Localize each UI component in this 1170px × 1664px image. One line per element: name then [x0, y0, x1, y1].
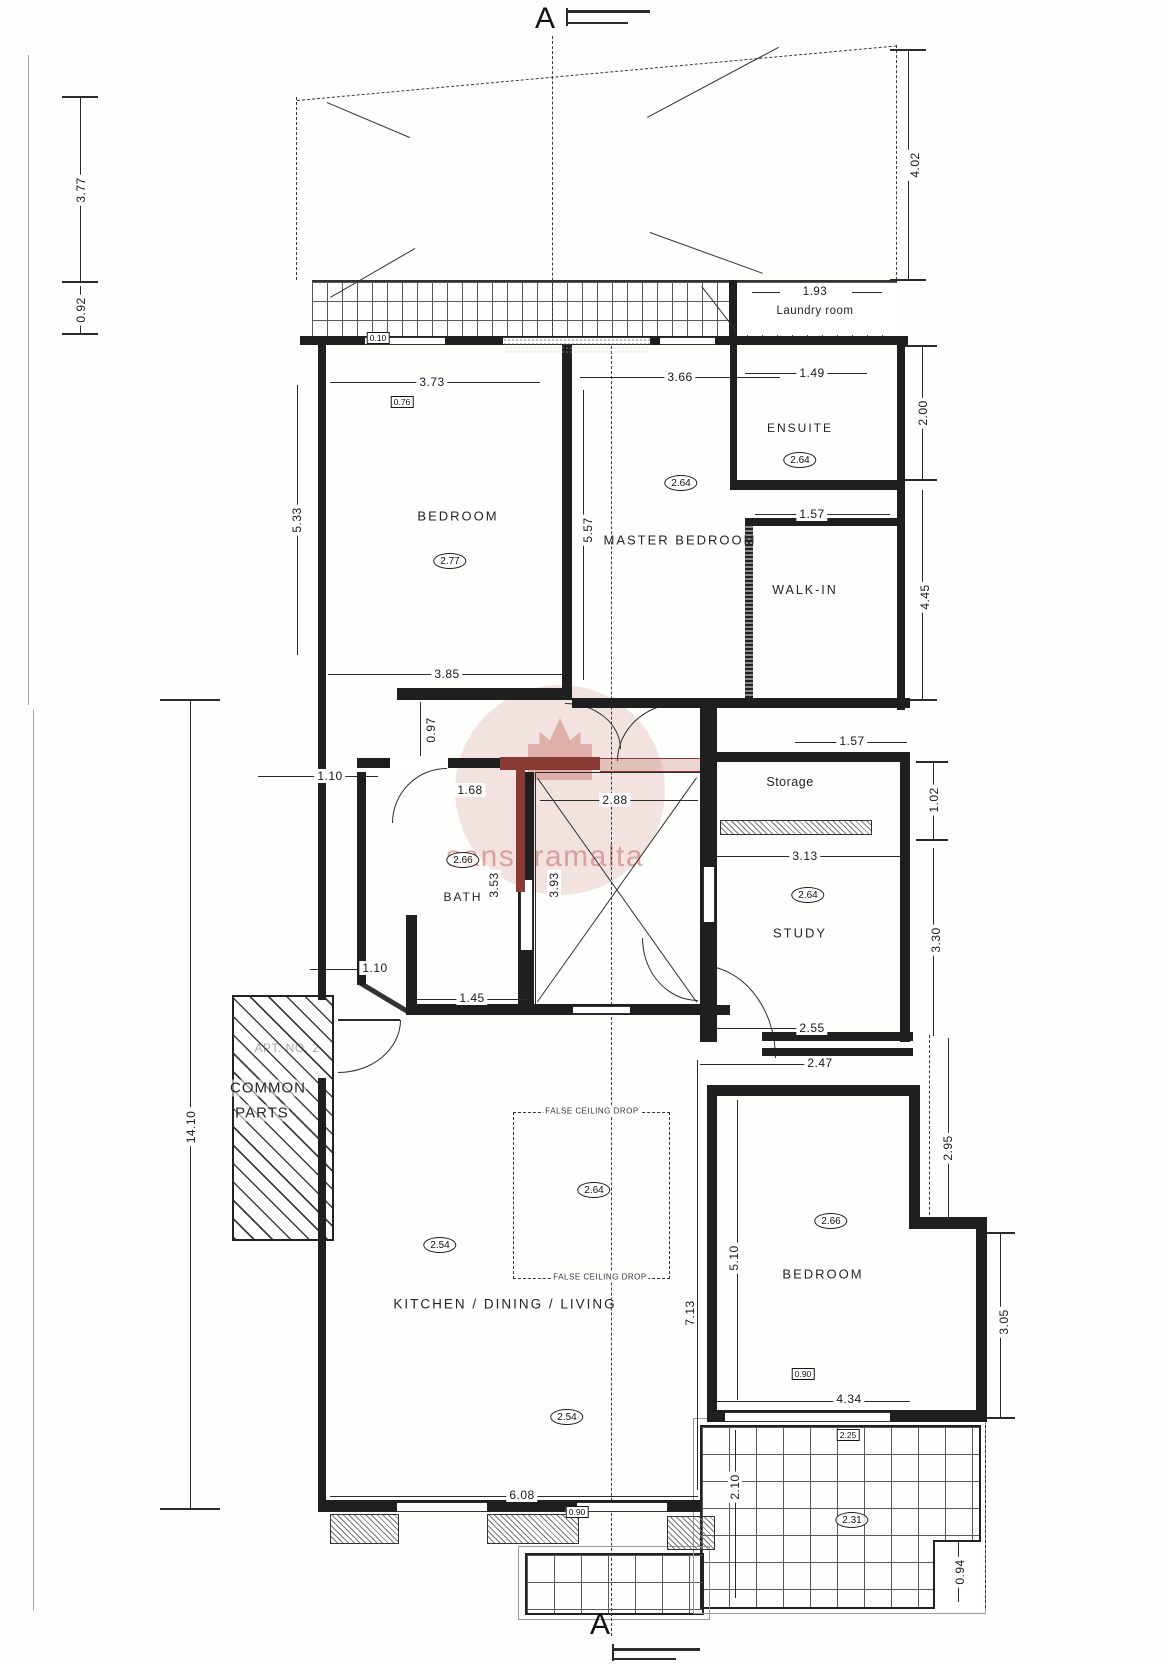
dim-common-length: 14.10 — [184, 1108, 198, 1147]
scan-artifact-line — [28, 55, 29, 705]
terrace-marker: 2.25 — [837, 1429, 860, 1441]
dim-bath-depth: 3.53 — [487, 869, 501, 900]
dim-tick — [160, 699, 220, 701]
airspace-boundary-right — [896, 45, 897, 280]
entrance-door-leaf — [338, 1019, 400, 1021]
dim-study-bottom: 2.55 — [796, 1021, 827, 1035]
window-sill-dots — [505, 346, 648, 353]
dim-line — [420, 702, 421, 758]
extension-line — [985, 1425, 986, 1608]
section-line — [552, 36, 553, 336]
dim-hall-width-lower: 1.10 — [359, 961, 390, 975]
void-diagonal — [650, 232, 763, 274]
wall-study-right — [900, 752, 910, 1042]
wall-red-highlight — [500, 757, 600, 770]
dim-line — [948, 1038, 949, 1222]
apt-number-label: APT. NO. 2 — [254, 1041, 319, 1055]
room-label-bedroom-2: BEDROOM — [782, 1267, 863, 1282]
dim-walkin-width: 1.57 — [796, 507, 827, 521]
window-kitchen — [577, 1502, 667, 1512]
wall-bedroom2-step — [909, 1217, 987, 1229]
dim-hall-drop: 0.97 — [424, 714, 438, 745]
section-flag-bottom — [614, 1648, 700, 1651]
room-label-kitchen: KITCHEN / DINING / LIVING — [393, 1297, 616, 1312]
room-label-storage: Storage — [766, 775, 813, 789]
dim-bath-door: 1.68 — [454, 783, 485, 797]
dim-bedroom1-top: 3.73 — [416, 375, 447, 389]
terrace-outer-edge — [518, 1546, 710, 1620]
section-flag-bottom — [612, 1644, 614, 1661]
section-flag-top — [566, 22, 628, 24]
wall-bath-stub — [406, 915, 417, 1005]
void-diagonal — [327, 102, 410, 138]
dim-tick — [890, 49, 926, 51]
door-arc-entrance — [338, 1020, 401, 1073]
dim-line — [190, 700, 191, 1510]
wall-hall-bottom — [572, 698, 910, 708]
wall-study-bottom — [762, 1032, 913, 1041]
ceiling-oval-bedroom-2: 2.66 — [814, 1213, 847, 1229]
window-hall-bottom — [573, 1006, 630, 1014]
dim-bedroom2-lower: 3.05 — [997, 1306, 1011, 1337]
window-sill — [667, 1516, 715, 1550]
room-label-common-1: COMMON — [230, 1080, 306, 1097]
section-flag-top — [566, 10, 650, 13]
dim-stair-window: 2.88 — [599, 793, 630, 807]
wall-bedroom2-left — [707, 1085, 717, 1421]
section-marker-bottom: A — [590, 1608, 610, 1642]
dim-line — [700, 1064, 812, 1065]
window-master — [503, 337, 650, 345]
dim-stair-depth: 3.93 — [547, 869, 561, 900]
window-bedroom2-terrace — [725, 1412, 890, 1422]
dim-tick — [752, 292, 780, 293]
section-line — [611, 336, 612, 1636]
dim-bedroom2-offset: 2.47 — [804, 1056, 835, 1070]
dim-master-top: 3.66 — [664, 370, 695, 384]
dim-bedroom1-bottom: 3.85 — [431, 667, 462, 681]
dim-storage-width: 3.13 — [789, 849, 820, 863]
ceiling-oval-master: 2.64 — [664, 475, 697, 491]
dim-tick — [160, 1508, 220, 1510]
dim-tick — [62, 281, 98, 283]
section-flag-top — [566, 8, 568, 26]
room-label-ensuite: ENSUITE — [767, 421, 833, 435]
dim-closet-width: 1.57 — [836, 734, 867, 748]
dim-tick — [62, 96, 98, 98]
room-label-bath: BATH — [443, 890, 482, 904]
dim-line — [735, 1430, 736, 1598]
dim-study-height: 3.30 — [929, 924, 943, 955]
dim-ensuite-depth: 2.00 — [916, 397, 930, 428]
wall-bedroom1-bottom — [397, 688, 572, 700]
kitchen-sill-marker: 0.90 — [566, 1506, 589, 1518]
room-label-laundry: Laundry room — [777, 305, 854, 317]
dim-yard-depth: 0.92 — [74, 294, 88, 325]
dim-terrace-depth: 2.10 — [728, 1471, 742, 1502]
door-arc-hall — [617, 703, 680, 761]
wall-bedroom2-right-upper — [909, 1085, 920, 1225]
floor-plan-page: A A 3.77 0.92 4.02 1.93 Laundry room 0.1… — [0, 0, 1170, 1664]
ceiling-oval-ensuite: 2.64 — [783, 452, 816, 468]
window-study-left — [703, 867, 715, 922]
dim-kitchen-height: 7.13 — [683, 1297, 697, 1328]
wall-bedroom2-top — [707, 1085, 920, 1096]
airspace-boundary-slope — [297, 45, 897, 101]
wall-bedroom2-offset — [762, 1048, 913, 1056]
dim-tick — [916, 761, 948, 763]
window — [660, 337, 715, 345]
wall-exterior-left — [318, 1078, 326, 1510]
ceiling-oval-kitchen-b: 2.54 — [550, 1409, 583, 1425]
section-marker-top: A — [535, 2, 555, 36]
ceiling-oval-bedroom-1: 2.77 — [433, 553, 466, 569]
dim-terrace-notch: 0.94 — [953, 1556, 967, 1587]
storage-shelf — [720, 820, 872, 835]
extension-line — [929, 1035, 930, 1225]
section-flag-bottom — [614, 1658, 676, 1660]
window-sill — [330, 1514, 399, 1544]
dim-tick — [983, 1232, 1015, 1234]
wall-storage-top — [705, 752, 910, 762]
dim-kitchen-width: 6.08 — [506, 1488, 537, 1502]
door-arc-bath — [392, 768, 447, 823]
dim-tick — [905, 479, 937, 481]
ceiling-oval-bath: 2.66 — [446, 852, 479, 868]
dim-laundry-width: 1.93 — [800, 286, 830, 298]
scan-artifact-line — [33, 710, 34, 1610]
wall-bath-left — [357, 772, 366, 985]
window-sill — [487, 1514, 579, 1544]
dim-bedroom2-height: 5.10 — [727, 1242, 741, 1273]
dim-tick — [983, 1417, 1015, 1419]
ceiling-oval-kitchen-a: 2.54 — [423, 1237, 456, 1253]
room-label-study: STUDY — [773, 926, 827, 941]
wall-ensuite-bottom — [737, 480, 905, 490]
room-label-master: MASTER BEDROOM — [604, 533, 757, 548]
window-kitchen — [397, 1502, 487, 1512]
dim-tick — [916, 839, 948, 841]
dim-storage-height: 1.02 — [927, 784, 941, 815]
dim-bedroom1-left: 5.33 — [290, 504, 304, 535]
wall-ensuite-divider — [730, 336, 737, 490]
dim-tick — [890, 279, 926, 281]
wall-hall-kitchen — [630, 1005, 730, 1015]
wall-walkin-left — [745, 526, 753, 702]
dim-ensuite-width: 1.49 — [796, 366, 827, 380]
dim-line — [717, 1401, 910, 1402]
dim-line — [697, 1060, 698, 1490]
ceiling-oval-study: 2.64 — [791, 887, 824, 903]
room-label-common-2: PARTS — [235, 1105, 289, 1122]
dim-bedroom2-upper: 2.95 — [941, 1132, 955, 1163]
wall-bedroom2-right-lower — [976, 1229, 987, 1421]
yard-level-marker: 0.10 — [367, 332, 390, 344]
dim-tick — [852, 292, 882, 293]
void-diagonal — [647, 47, 779, 118]
dim-airspace-right: 4.02 — [908, 149, 922, 180]
dim-bedroom2-bottom: 4.34 — [833, 1392, 864, 1406]
room-label-walkin: WALK-IN — [772, 583, 838, 597]
dim-yard-height: 3.77 — [74, 174, 88, 205]
wall-bath-chamfer — [357, 980, 410, 1015]
door-arc-master — [565, 703, 621, 749]
false-ceiling-label-top: FALSE CEILING DROP — [543, 1107, 640, 1116]
false-ceiling-label-bottom: FALSE CEILING DROP — [551, 1273, 648, 1282]
bedroom2-sill-marker: 0.90 — [792, 1368, 815, 1380]
stair-window-red — [600, 758, 700, 772]
dim-bath-bottom: 1.45 — [456, 991, 487, 1005]
wall-bedroom1-master — [562, 345, 572, 700]
room-label-bedroom-1: BEDROOM — [417, 509, 498, 524]
dim-tick — [905, 345, 937, 347]
bedroom1-sill-marker: 0.76 — [391, 396, 414, 408]
dim-walkin-depth: 4.45 — [918, 581, 932, 612]
dim-hall-width-upper: 1.10 — [314, 769, 345, 783]
dim-bedroom1-right: 5.57 — [581, 514, 595, 545]
wall-red-highlight — [516, 770, 525, 892]
airspace-boundary-left — [296, 97, 297, 280]
dim-tick — [62, 333, 98, 335]
wall-exterior-left — [318, 336, 326, 1000]
